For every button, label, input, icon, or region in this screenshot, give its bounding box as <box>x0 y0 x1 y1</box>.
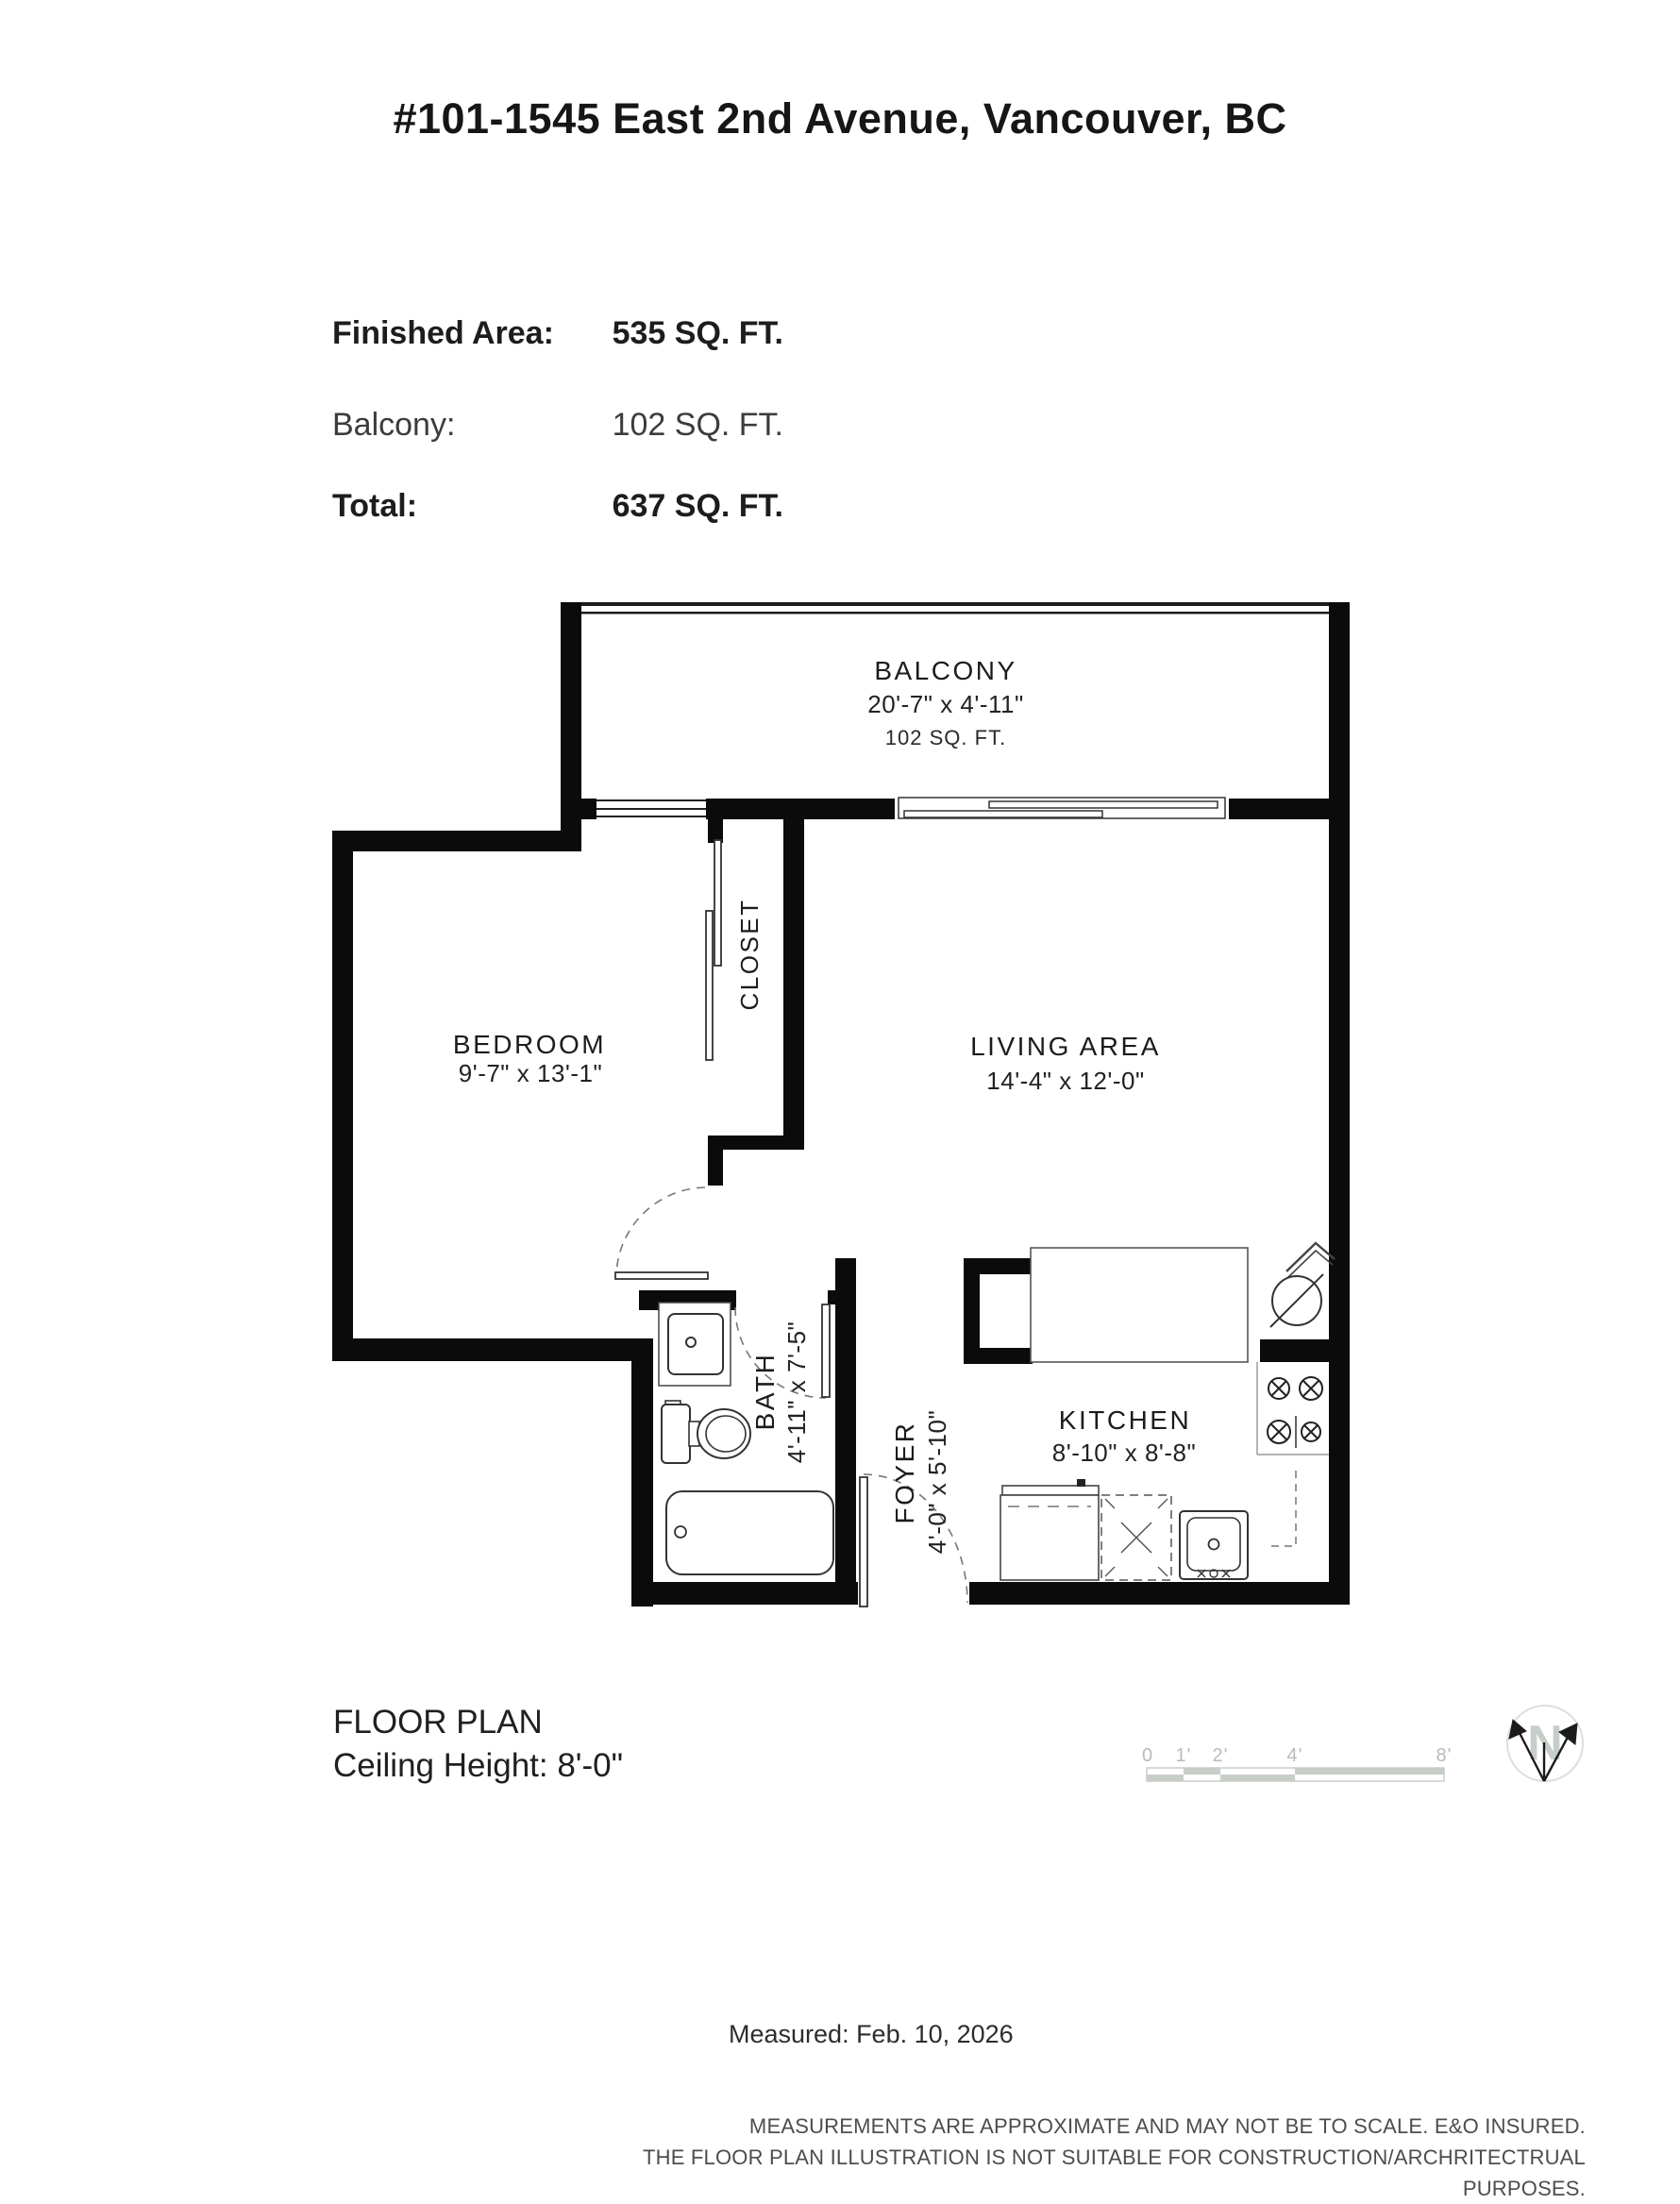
disclaimer-line-2: THE FLOOR PLAN ILLUSTRATION IS NOT SUITA… <box>642 2142 1586 2204</box>
kitchen-label: KITCHEN <box>1059 1405 1191 1435</box>
kitchen-sink <box>1180 1511 1248 1579</box>
ceiling-height-label: Ceiling Height: 8'-0" <box>333 1744 623 1788</box>
finished-area-row: Finished Area: 535 SQ. FT. <box>332 315 785 355</box>
floor-plan-caption: FLOOR PLAN Ceiling Height: 8'-0" <box>333 1701 623 1788</box>
dishwasher <box>1101 1495 1171 1580</box>
balcony-area-value: 102 SQ. FT. <box>332 407 783 444</box>
kitchen-dimensions: 8'-10" x 8'-8" <box>1052 1438 1196 1467</box>
bathroom-sink <box>659 1303 731 1386</box>
total-area-row: Total: 637 SQ. FT. <box>332 488 785 528</box>
scale-and-compass: 0 1' 2' 4' 8' N <box>1076 1680 1642 1812</box>
refrigerator <box>1000 1479 1099 1580</box>
disclaimer: MEASUREMENTS ARE APPROXIMATE AND MAY NOT… <box>642 2111 1586 2204</box>
total-area-value: 637 SQ. FT. <box>332 488 783 525</box>
kitchen-peninsula-counter <box>1031 1248 1248 1362</box>
floor-plan-drawing: BALCONY 20'-7" x 4'-11" 102 SQ. FT. BEDR… <box>311 566 1369 1671</box>
scale-tick-0: 0 <box>1142 1745 1153 1766</box>
balcony-sqft: 102 SQ. FT. <box>885 726 1006 749</box>
bedroom-window <box>596 797 706 821</box>
bathtub <box>666 1491 833 1574</box>
balcony-dimensions: 20'-7" x 4'-11" <box>867 690 1023 718</box>
balcony-area-row: Balcony: 102 SQ. FT. <box>332 407 785 446</box>
corner-fixture <box>1270 1243 1335 1327</box>
scale-bar: 0 1' 2' 4' 8' <box>1142 1745 1453 1781</box>
bedroom-label: BEDROOM <box>453 1030 606 1059</box>
bath-label: BATH <box>750 1353 780 1431</box>
living-area-dimensions: 14'-4" x 12'-0" <box>986 1067 1144 1095</box>
measured-date: Measured: Feb. 10, 2026 <box>729 2020 1014 2049</box>
bedroom-door <box>615 1187 708 1279</box>
closet-sliding-doors <box>706 840 721 1060</box>
scale-tick-4: 4' <box>1287 1745 1303 1766</box>
balcony-sliding-door <box>895 796 1229 821</box>
walls <box>332 602 1350 1607</box>
north-compass-icon: N <box>1507 1706 1583 1781</box>
disclaimer-line-1: MEASUREMENTS ARE APPROXIMATE AND MAY NOT… <box>642 2111 1586 2142</box>
scale-tick-2: 2' <box>1213 1745 1229 1766</box>
bedroom-dimensions: 9'-7" x 13'-1" <box>459 1059 602 1087</box>
bath-dimensions: 4'-11" x 7'-5" <box>782 1321 811 1464</box>
scale-tick-1: 1' <box>1176 1745 1192 1766</box>
closet-label: CLOSET <box>735 898 764 1010</box>
floor-plan-label: FLOOR PLAN <box>333 1701 623 1744</box>
stove-burners <box>1268 1377 1322 1448</box>
living-area-label: LIVING AREA <box>970 1032 1161 1061</box>
area-summary-table: Finished Area: 535 SQ. FT. Balcony: 102 … <box>332 311 785 538</box>
toilet <box>662 1401 750 1463</box>
scale-tick-8: 8' <box>1436 1745 1453 1766</box>
finished-area-value: 535 SQ. FT. <box>332 315 783 352</box>
page-title: #101-1545 East 2nd Avenue, Vancouver, BC <box>0 94 1680 143</box>
balcony-label: BALCONY <box>874 656 1016 685</box>
foyer-label: FOYER <box>890 1422 919 1524</box>
foyer-dimensions: 4'-0" x 5'-10" <box>923 1410 951 1554</box>
